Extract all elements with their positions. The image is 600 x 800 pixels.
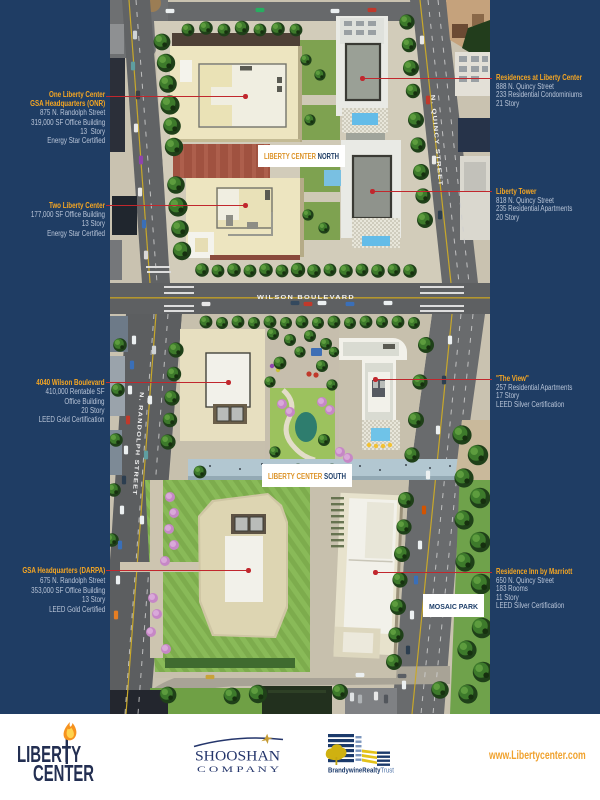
svg-text:WILSON BOULEVARD: WILSON BOULEVARD (257, 295, 355, 301)
svg-text:BrandywineRealtyTrust: BrandywineRealtyTrust (328, 766, 394, 775)
svg-text:MOSAIC PARK: MOSAIC PARK (429, 602, 479, 611)
svg-text:SHOOSHAN: SHOOSHAN (195, 749, 280, 765)
svg-text:CENTER: CENTER (33, 762, 94, 787)
svg-text:LIBERTY CENTER NORTH: LIBERTY CENTER NORTH (264, 152, 339, 161)
svg-text:C O M P A N Y: C O M P A N Y (197, 765, 279, 774)
svg-text:LIBERTY CENTER SOUTH: LIBERTY CENTER SOUTH (268, 472, 346, 481)
